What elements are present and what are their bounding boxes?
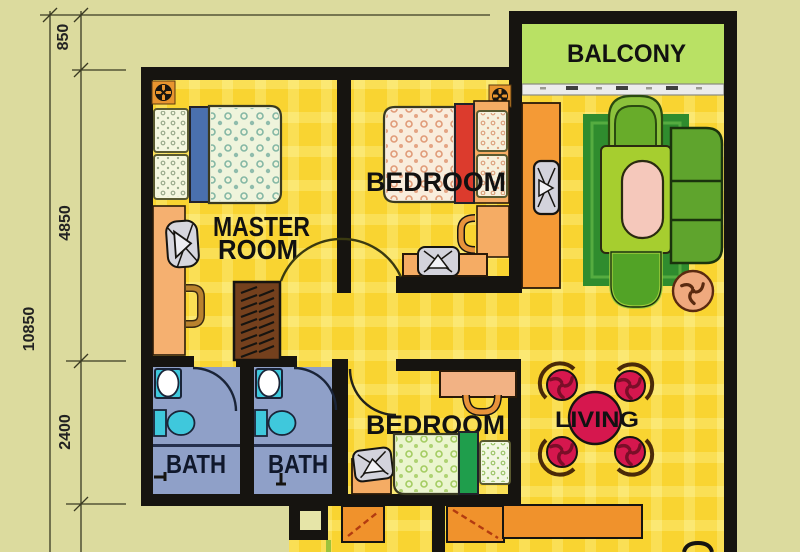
svg-text:BALCONY: BALCONY (567, 40, 686, 68)
svg-text:4850: 4850 (57, 205, 74, 241)
svg-text:BATH: BATH (268, 449, 328, 479)
svg-text:BATH: BATH (166, 449, 226, 479)
svg-text:BEDROOM: BEDROOM (366, 167, 506, 197)
svg-text:10850: 10850 (21, 307, 38, 352)
svg-text:LIVING: LIVING (555, 407, 639, 432)
svg-text:2400: 2400 (57, 414, 74, 450)
svg-text:850: 850 (55, 24, 72, 51)
svg-text:ROOM: ROOM (218, 234, 298, 265)
